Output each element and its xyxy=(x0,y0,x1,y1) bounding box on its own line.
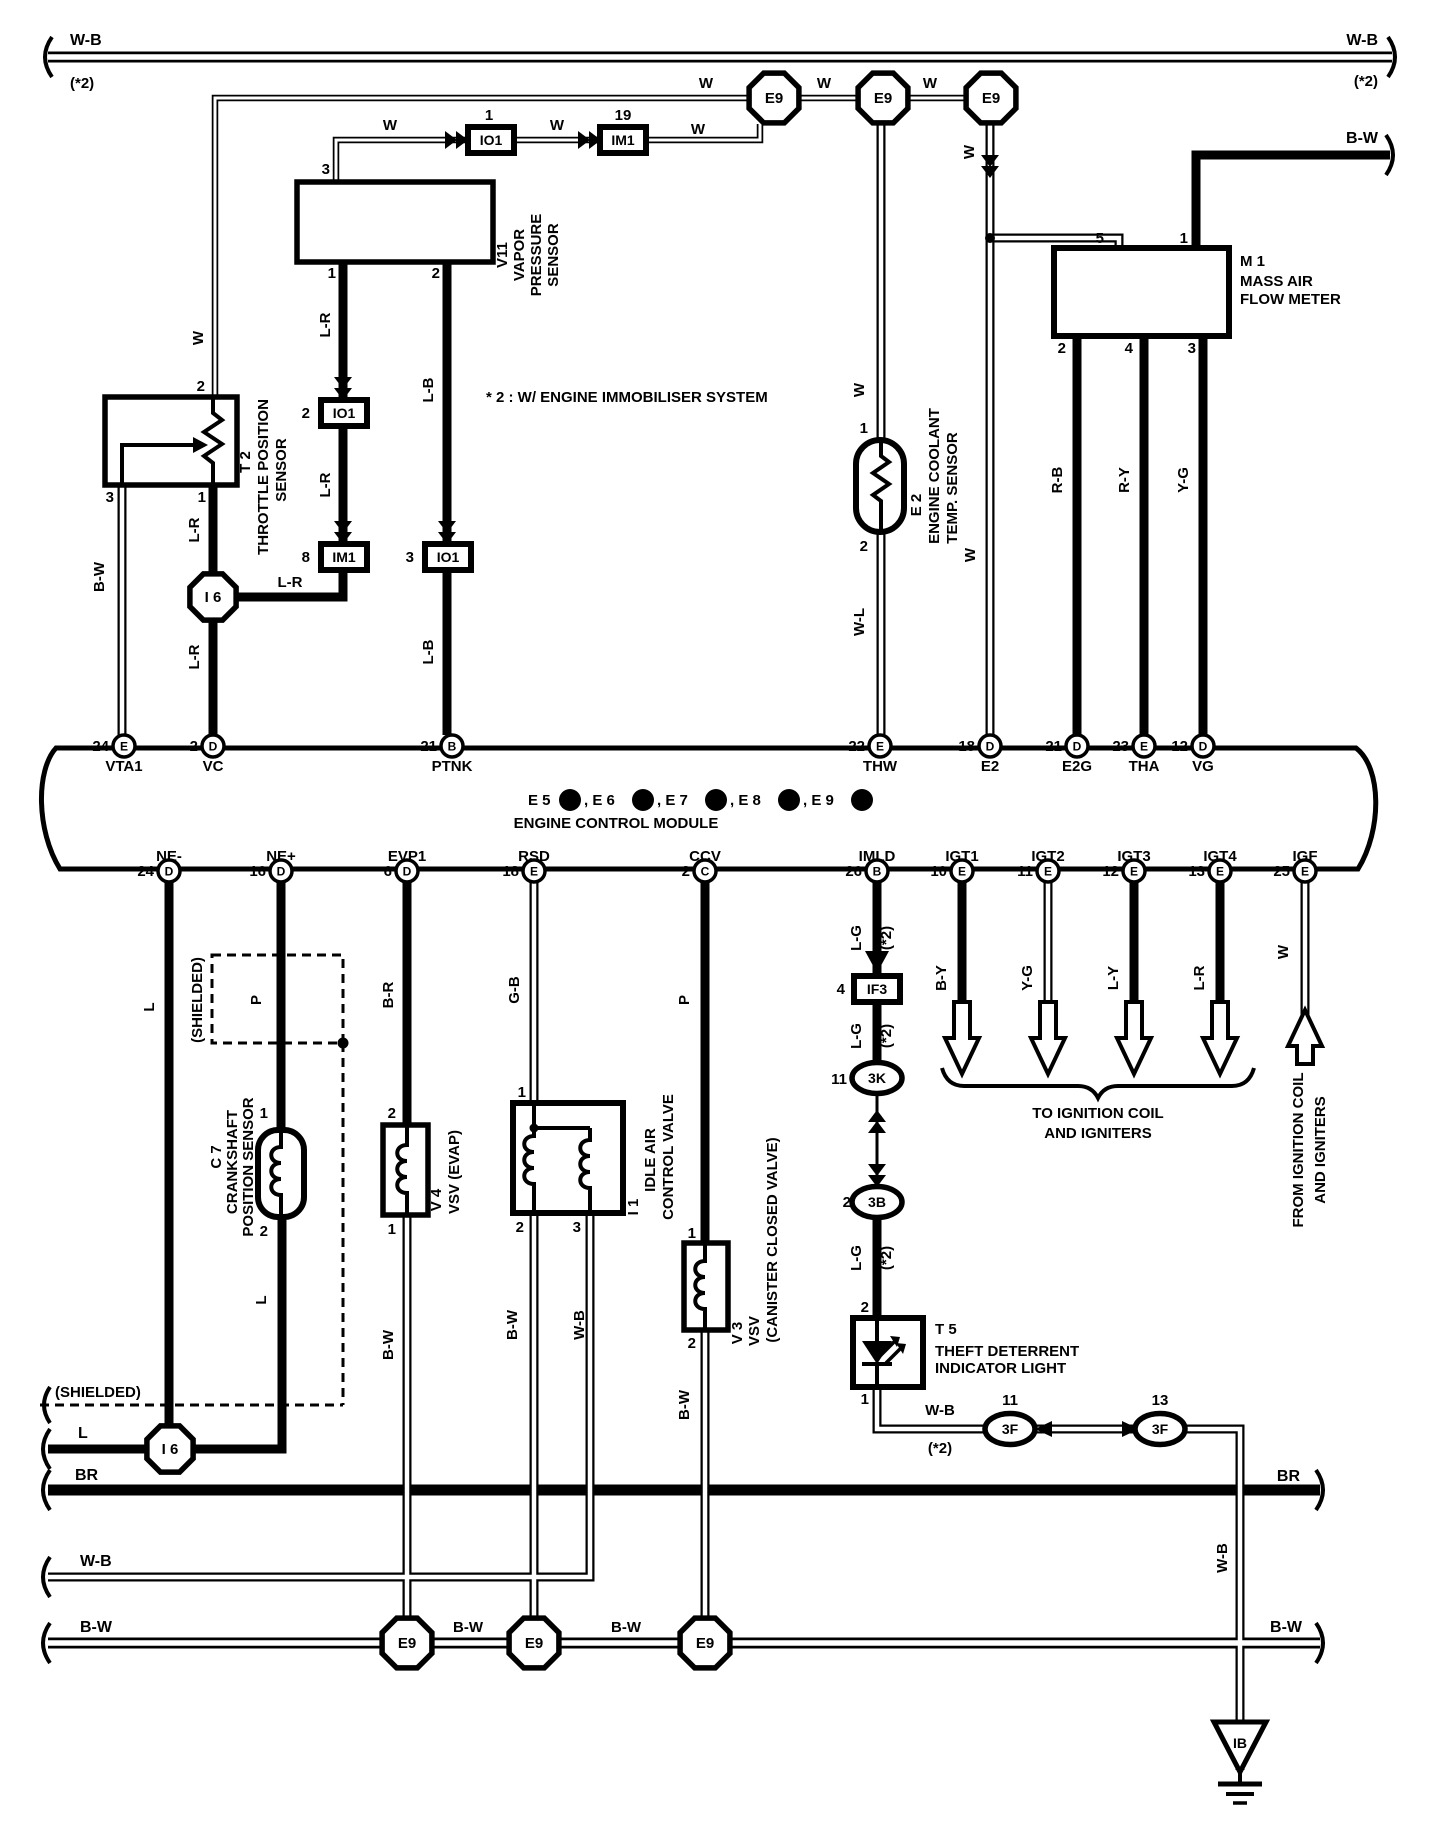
comp-i1-id: I 1 xyxy=(625,1199,642,1216)
connector-label: E9 xyxy=(765,90,783,107)
igt2-arrow xyxy=(1031,1002,1065,1074)
terminal-name: VC xyxy=(203,758,224,775)
pin-3k-11: 11 xyxy=(831,1071,847,1088)
pin-m1-4: 4 xyxy=(1125,340,1134,357)
terminal-name: PTNK xyxy=(432,758,473,775)
connector-IO1: IO1 xyxy=(468,127,514,153)
connector-E9: E9 xyxy=(680,1618,730,1668)
connector-IM1: IM1 xyxy=(600,127,646,153)
wire-lg-2: L-G xyxy=(848,1023,865,1049)
pin-i1-2: 2 xyxy=(516,1219,524,1236)
rail-bw-top-right: B-W xyxy=(1346,130,1379,147)
pin-io1-3: 3 xyxy=(406,549,414,566)
wiper-arrow xyxy=(193,437,208,453)
ecm-connector-id-letter: B xyxy=(639,794,648,808)
terminal-pin-number: 24 xyxy=(92,738,109,755)
terminal-pin-number: 11 xyxy=(1017,863,1033,880)
wire-wb-t5n: (*2) xyxy=(928,1440,952,1457)
pin-3f-13: 13 xyxy=(1152,1392,1169,1409)
comp-t2-id: T 2 xyxy=(237,451,254,473)
pin-t2-2: 2 xyxy=(197,378,205,395)
rail-bw-bot-right: B-W xyxy=(1270,1619,1303,1636)
terminal-letter: E xyxy=(530,865,538,879)
pin-v11-3: 3 xyxy=(322,161,330,178)
connector-E9: E9 xyxy=(858,73,908,123)
note-from-ign-2: AND IGNITERS xyxy=(1312,1096,1329,1204)
comp-c7-l1: CRANKSHAFT xyxy=(224,1110,241,1214)
connector-3F: 3F xyxy=(1135,1414,1185,1445)
igt1-arrow xyxy=(945,1002,979,1074)
terminal-pin-number: 18 xyxy=(958,738,975,755)
wire-p-ne: P xyxy=(248,995,265,1005)
ecm-connector-id-circle: D xyxy=(778,789,800,811)
ecm-connector-id-letter: C xyxy=(712,794,721,808)
wire-w-e2sens: W xyxy=(851,382,868,397)
wire-bw-v4: B-W xyxy=(380,1329,397,1360)
comp-v3-l2: (CANISTER CLOSED VALVE) xyxy=(764,1137,781,1342)
pin-t5-2: 2 xyxy=(861,1299,869,1316)
comp-v3-l1: VSV xyxy=(746,1316,763,1346)
comp-v4-id: V 4 xyxy=(428,1188,445,1211)
wire-ry: R-Y xyxy=(1116,467,1133,493)
comp-c7-l2: POSITION SENSOR xyxy=(240,1097,257,1236)
connector-IO1: IO1 xyxy=(321,400,367,426)
wire-lr-3: L-R xyxy=(186,517,203,542)
terminal-name: IGT3 xyxy=(1117,848,1150,865)
shield-label-1: (SHIELDED) xyxy=(189,957,206,1043)
comp-c7-id: C 7 xyxy=(208,1145,225,1168)
terminal-letter: D xyxy=(165,865,174,879)
wire-l-c7: L xyxy=(253,1295,270,1304)
connector-label: 3F xyxy=(1002,1421,1019,1437)
rail-br-right: BR xyxy=(1277,1468,1301,1485)
terminal-pin-number: 16 xyxy=(249,863,266,880)
terminal-pin-number: 25 xyxy=(1273,863,1290,880)
connector-3F: 3F xyxy=(985,1414,1035,1445)
wire-bw-v3: B-W xyxy=(676,1389,693,1420)
terminal-pin-number: 12 xyxy=(1171,738,1188,755)
terminal-letter: E xyxy=(876,740,884,754)
terminal-name: RSD xyxy=(518,848,550,865)
comp-i1-l1: IDLE AIR xyxy=(642,1128,659,1192)
terminal-letter: B xyxy=(448,740,457,754)
connector-label: E9 xyxy=(525,1635,543,1652)
comp-t2-l2: SENSOR xyxy=(273,438,290,502)
ecm-connector-id-circle: C xyxy=(705,789,727,811)
connector-label: I 6 xyxy=(205,589,222,606)
connector-E9: E9 xyxy=(382,1618,432,1668)
comp-m1-id: M 1 xyxy=(1240,253,1265,270)
rail-bw-bot-m2: B-W xyxy=(611,1619,642,1636)
terminal-name: NE+ xyxy=(266,848,296,865)
connector-label: IB xyxy=(1233,1735,1247,1751)
note-from-ign-1: FROM IGNITION COIL xyxy=(1290,1073,1307,1228)
terminal-pin-number: 13 xyxy=(1188,863,1205,880)
terminal-name: IGT1 xyxy=(945,848,978,865)
rail-wb-top-right-note: (*2) xyxy=(1354,73,1378,90)
terminal-pin-number: 12 xyxy=(1102,863,1119,880)
terminal-letter: E xyxy=(120,740,128,754)
connector-I6: I 6 xyxy=(190,574,236,620)
ecm-connector-id-circle: B xyxy=(632,789,654,811)
pin-t5-1: 1 xyxy=(861,1391,869,1408)
ecm-connector-ref: , E 7 xyxy=(657,792,688,809)
ecm-connector-id-letter: D xyxy=(785,794,794,808)
connector-label: 3F xyxy=(1152,1421,1169,1437)
comp-i1-l2: CONTROL VALVE xyxy=(660,1094,677,1220)
note-to-ign-1: TO IGNITION COIL xyxy=(1032,1105,1163,1122)
connector-label: IO1 xyxy=(437,549,460,565)
ecm-connector-id-letter: E xyxy=(858,794,866,808)
connector-label: E9 xyxy=(696,1635,714,1652)
connector-label: E9 xyxy=(874,90,892,107)
wire-w-t2: W xyxy=(190,330,207,345)
rail-wb-mid-left: W-B xyxy=(80,1553,112,1570)
wire-w-5: W xyxy=(817,75,832,92)
pin-im1-19: 19 xyxy=(615,107,632,124)
wire-w-1: W xyxy=(383,117,398,134)
comp-v11-l3: SENSOR xyxy=(545,223,562,287)
pin-v4-1: 1 xyxy=(388,1221,396,1238)
wire-lg-1: L-G xyxy=(848,925,865,951)
terminal-name: THW xyxy=(863,758,898,775)
terminal-pin-number: 18 xyxy=(502,863,519,880)
connector-label: IM1 xyxy=(611,132,635,148)
terminal-name: NE- xyxy=(156,848,182,865)
comp-e2-l2: TEMP. SENSOR xyxy=(944,432,961,544)
t2-throttle-position-sensor xyxy=(105,397,237,485)
v4-vsv-evap xyxy=(383,1125,428,1215)
wire-lb-1: L-B xyxy=(420,377,437,402)
connector-3K: 3K xyxy=(852,1063,902,1094)
comp-m1-l2: FLOW METER xyxy=(1240,291,1341,308)
connector-E9: E9 xyxy=(749,73,799,123)
connector-label: IF3 xyxy=(867,981,887,997)
connector-E9: E9 xyxy=(966,73,1016,123)
terminal-pin-number: 2 xyxy=(190,738,198,755)
comp-t2-l1: THROTTLE POSITION xyxy=(255,399,272,555)
terminal-letter: E xyxy=(1140,740,1148,754)
pin-i1-1: 1 xyxy=(518,1084,526,1101)
wire-lr-2: L-R xyxy=(317,472,334,497)
ecm-connector-ref: , E 6 xyxy=(584,792,615,809)
terminal-name: IGF xyxy=(1293,848,1318,865)
terminal-pin-number: 22 xyxy=(848,738,865,755)
wiring-diagram-page: { "title": "Engine control module wiring… xyxy=(0,0,1440,1824)
terminal-name: EVP1 xyxy=(388,848,426,865)
rail-wb-top-left-note: (*2) xyxy=(70,75,94,92)
pin-3b-2: 2 xyxy=(843,1194,851,1211)
wire-lr-i6: L-R xyxy=(278,574,303,591)
wire-gb-rsd: G-B xyxy=(506,976,523,1004)
pin-io1-1: 1 xyxy=(485,107,493,124)
wire-w-igf: W xyxy=(1275,944,1292,959)
connector-3B: 3B xyxy=(852,1187,902,1218)
igf-arrow xyxy=(1288,1010,1322,1064)
terminal-letter: C xyxy=(701,865,710,879)
wire-lg-1n: (*2) xyxy=(878,926,895,950)
wire-lg-3: L-G xyxy=(848,1245,865,1271)
pin-m1-3: 3 xyxy=(1188,340,1196,357)
comp-t5-l1: THEFT DETERRENT xyxy=(935,1343,1079,1360)
comp-v11-id: V11 xyxy=(494,242,511,268)
ignition-brace xyxy=(942,1068,1254,1098)
wire-w-2: W xyxy=(550,117,565,134)
terminal-pin-number: 21 xyxy=(420,738,437,755)
rail-br-left: BR xyxy=(75,1467,99,1484)
wire-w-e2t: W xyxy=(962,547,979,562)
terminal-name: IGT2 xyxy=(1031,848,1064,865)
wire-l-ne: L xyxy=(141,1002,158,1011)
igt3-arrow xyxy=(1117,1002,1151,1074)
pin-c7-2: 2 xyxy=(260,1223,268,1240)
pin-im1-8: 8 xyxy=(302,549,310,566)
terminal-pin-number: 23 xyxy=(1112,738,1129,755)
terminal-letter: E xyxy=(1301,865,1309,879)
terminal-pin-number: 26 xyxy=(845,863,862,880)
terminal-pin-number: 6 xyxy=(384,863,392,880)
wire-p-ccv: P xyxy=(676,995,693,1005)
wire-wl: W-L xyxy=(851,608,868,636)
terminal-name: IGT4 xyxy=(1203,848,1237,865)
v11-vapor-pressure-sensor xyxy=(297,182,493,262)
terminal-name: IMLD xyxy=(859,848,896,865)
wire-rb: R-B xyxy=(1049,467,1066,494)
terminal-pin-number: 10 xyxy=(930,863,947,880)
i1-idle-air-control-valve xyxy=(513,1103,623,1213)
t5-theft-deterrent-indicator-light xyxy=(853,1318,923,1387)
terminal-name: E2 xyxy=(981,758,999,775)
pin-io1-2: 2 xyxy=(302,405,310,422)
pin-t2-1: 1 xyxy=(198,489,206,506)
m1-mass-air-flow-meter xyxy=(1054,248,1229,336)
ecm-connector-id-circle: E xyxy=(851,789,873,811)
wire-l-stub: L xyxy=(78,1425,88,1442)
comp-v11-l2: PRESSURE xyxy=(528,214,545,297)
pin-e2-2: 2 xyxy=(860,538,868,555)
connector-label: E9 xyxy=(398,1635,416,1652)
terminal-letter: E xyxy=(1044,865,1052,879)
wire-lg-3n: (*2) xyxy=(878,1246,895,1270)
wire-yg-1: Y-G xyxy=(1175,467,1192,493)
shield-label-2: (SHIELDED) xyxy=(55,1384,141,1401)
connector-label: IO1 xyxy=(333,405,356,421)
wire-bw-vta1: B-W xyxy=(91,561,108,592)
terminal-letter: D xyxy=(1073,740,1082,754)
terminal-pin-number: 2 xyxy=(682,863,690,880)
ecm-name: ENGINE CONTROL MODULE xyxy=(514,815,719,832)
ecm-connector-ref: , E 8 xyxy=(730,792,761,809)
terminal-name: E2G xyxy=(1062,758,1092,775)
wire-w-3: W xyxy=(691,121,706,138)
pin-v11-1: 1 xyxy=(328,265,336,282)
comp-t5-id: T 5 xyxy=(935,1321,957,1338)
pin-3f-11: 11 xyxy=(1002,1392,1018,1409)
connector-IF3: IF3 xyxy=(854,976,900,1002)
outlined-wire-cores xyxy=(48,57,1392,1770)
connector-IB: IB xyxy=(1214,1722,1266,1772)
connector-E9: E9 xyxy=(509,1618,559,1668)
outlined-wires xyxy=(48,57,1392,1770)
wiring-diagram: E9E9E9I 6I 6E9E9E9IO1IM1IO1IM1IO1IF33K3B… xyxy=(0,0,1440,1824)
wire-lb-2: L-B xyxy=(420,639,437,664)
wire-by: B-Y xyxy=(933,965,950,991)
pin-t2-3: 3 xyxy=(106,489,114,506)
wire-wb-t5: W-B xyxy=(925,1402,955,1419)
connector-I6: I 6 xyxy=(147,1426,193,1472)
terminal-letter: D xyxy=(986,740,995,754)
wire-ly: L-Y xyxy=(1105,966,1122,990)
wire-lr-1: L-R xyxy=(317,312,334,337)
pin-v4-2: 2 xyxy=(388,1105,396,1122)
connector-label: E9 xyxy=(982,90,1000,107)
connector-IM1: IM1 xyxy=(321,544,367,570)
terminal-letter: D xyxy=(209,740,218,754)
pin-i1-3: 3 xyxy=(573,1219,581,1236)
wire-lr-igt4: L-R xyxy=(1191,965,1208,990)
pin-e2-1: 1 xyxy=(860,420,868,437)
terminal-letter: D xyxy=(1199,740,1208,754)
pin-c7-1: 1 xyxy=(260,1105,268,1122)
note-immobiliser: * 2 : W/ ENGINE IMMOBILISER SYSTEM xyxy=(486,389,768,406)
connector-label: IM1 xyxy=(332,549,356,565)
e2-coolant-temp-sensor xyxy=(856,440,904,532)
comp-e2-l1: ENGINE COOLANT xyxy=(926,408,943,544)
comp-v3-id: V 3 xyxy=(729,1322,746,1345)
connector-label: I 6 xyxy=(162,1441,179,1458)
pin-m1-2: 2 xyxy=(1058,340,1066,357)
pin-m1-5: 5 xyxy=(1096,230,1104,247)
comp-t5-l2: INDICATOR LIGHT xyxy=(935,1360,1066,1377)
wire-br-evp1: B-R xyxy=(380,982,397,1009)
ecm-connector-id-letter: A xyxy=(566,794,575,808)
terminal-name: VTA1 xyxy=(105,758,142,775)
terminal-letter: D xyxy=(277,865,286,879)
pin-if3-4: 4 xyxy=(837,981,846,998)
comp-e2-id: E 2 xyxy=(908,494,925,517)
wire-wb-drop: W-B xyxy=(1214,1543,1231,1573)
comp-m1-l1: MASS AIR xyxy=(1240,273,1313,290)
pin-v3-1: 1 xyxy=(688,1225,696,1242)
note-to-ign-2: AND IGNITERS xyxy=(1044,1125,1152,1142)
rail-bw-bot-left: B-W xyxy=(80,1619,113,1636)
terminal-name: VG xyxy=(1192,758,1214,775)
terminal-pin-number: 24 xyxy=(137,863,154,880)
rail-wb-top-left: W-B xyxy=(70,32,102,49)
wire-w-e93: W xyxy=(961,144,978,159)
ignition-arrows xyxy=(945,1002,1322,1074)
terminal-letter: B xyxy=(873,865,882,879)
ecm-connector-ref: E 5 xyxy=(528,792,551,809)
v3-vsv-canister-closed-valve xyxy=(684,1243,728,1330)
wire-lg-2n: (*2) xyxy=(878,1024,895,1048)
terminal-letter: E xyxy=(1130,865,1138,879)
wire-w-4: W xyxy=(699,75,714,92)
ecm-connector-ref: , E 9 xyxy=(803,792,834,809)
terminal-pin-number: 21 xyxy=(1045,738,1062,755)
rail-wb-top-right: W-B xyxy=(1346,32,1378,49)
ecm-connector-id-circle: A xyxy=(559,789,581,811)
terminal-name: CCV xyxy=(689,848,721,865)
connector-label: IO1 xyxy=(480,132,503,148)
wire-bw-i1: B-W xyxy=(504,1309,521,1340)
terminal-letter: E xyxy=(958,865,966,879)
comp-v4-l1: VSV (EVAP) xyxy=(446,1130,463,1214)
wire-w-6: W xyxy=(923,75,938,92)
connector-label: 3B xyxy=(868,1194,886,1210)
connector-IO1: IO1 xyxy=(425,544,471,570)
rail-bw-bot-m1: B-W xyxy=(453,1619,484,1636)
terminal-letter: E xyxy=(1216,865,1224,879)
connector-label: 3K xyxy=(868,1070,886,1086)
terminal-letter: D xyxy=(403,865,412,879)
wire-lr-4: L-R xyxy=(186,644,203,669)
pin-v3-2: 2 xyxy=(688,1335,696,1352)
igt4-arrow xyxy=(1203,1002,1237,1074)
terminal-name: THA xyxy=(1129,758,1160,775)
wire-yg-2: Y-G xyxy=(1019,965,1036,991)
comp-v11-l1: VAPOR xyxy=(511,229,528,281)
pin-v11-2: 2 xyxy=(432,265,440,282)
c7-crankshaft-position-sensor xyxy=(258,1130,304,1217)
wire-wb-i1: W-B xyxy=(571,1310,588,1340)
pin-m1-1: 1 xyxy=(1180,230,1188,247)
